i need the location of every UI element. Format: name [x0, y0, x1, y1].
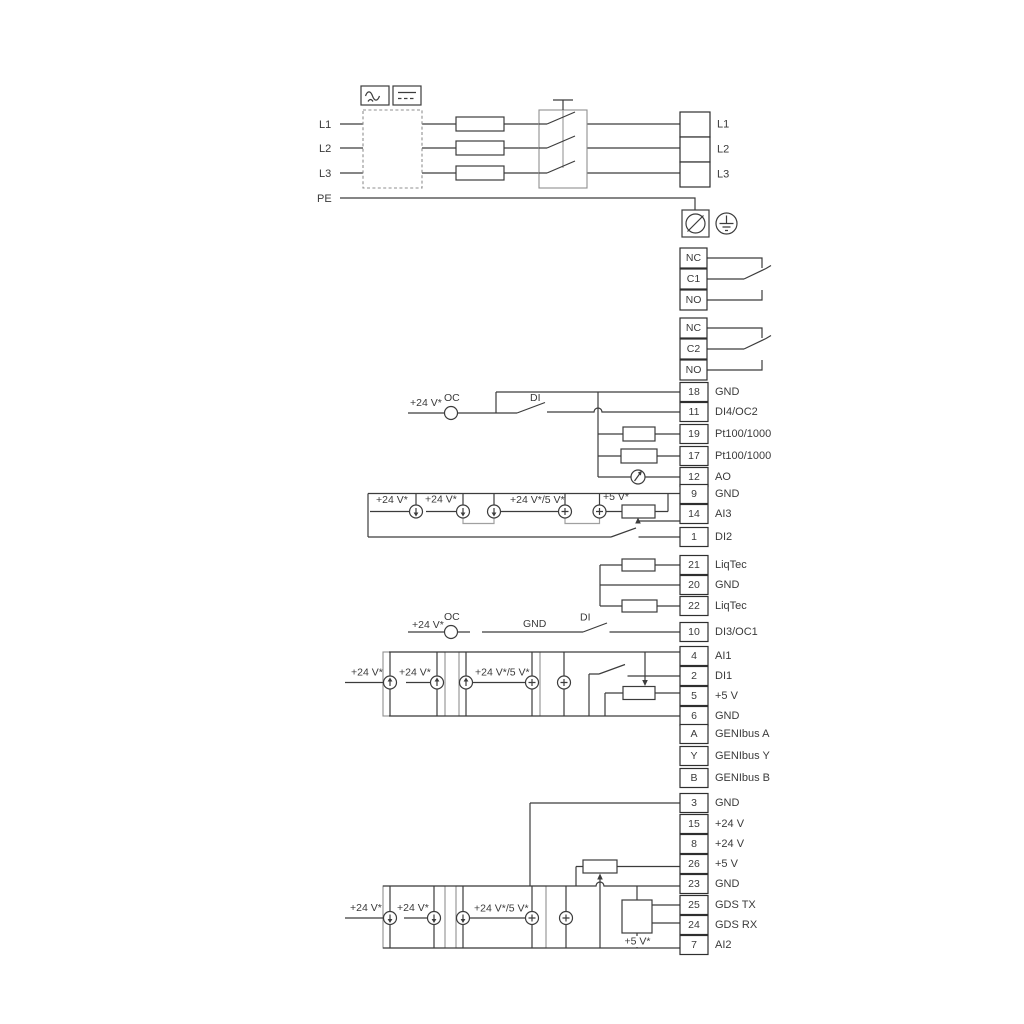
wiper-arrow-down: [642, 680, 648, 686]
fuse-l3: [456, 166, 504, 180]
terminal-label: GND: [715, 710, 740, 722]
terminal-number: C1: [687, 273, 701, 285]
terminal-number: 26: [688, 858, 700, 870]
pt100-sensor-17: [621, 449, 657, 463]
terminal-label: +24 V: [715, 818, 745, 830]
mains-label-l2: L2: [319, 143, 331, 155]
terminal-label: GND: [715, 878, 740, 890]
label-oc: OC: [444, 611, 460, 623]
main-switch: [539, 100, 587, 188]
terminal-label: L3: [717, 169, 729, 181]
terminal-label: GDS RX: [715, 919, 758, 931]
terminal-cell: [680, 112, 710, 137]
label-di: DI: [580, 612, 591, 624]
terminal-label: LiqTec: [715, 559, 747, 571]
terminal-label: L1: [717, 119, 729, 131]
terminal-number: 25: [688, 899, 700, 911]
label-5v: +5 V*: [603, 491, 629, 503]
label-24v: +24 V*: [425, 494, 457, 506]
terminal-number: 4: [691, 650, 697, 662]
terminal-number: NO: [686, 294, 702, 306]
gnd18-rail: [496, 392, 680, 413]
liqtec-terminals: 21LiqTec20GND22LiqTec: [680, 556, 747, 616]
terminal-cell: [680, 162, 710, 187]
relay1-contact: [707, 258, 771, 300]
terminal-number: 3: [691, 797, 697, 809]
terminal-label: GDS TX: [715, 899, 756, 911]
label-24v-5v: +24 V*/5 V*: [475, 667, 530, 679]
terminal-label: AI3: [715, 508, 732, 520]
terminal-label: L2: [717, 144, 729, 156]
label-oc: OC: [444, 392, 460, 404]
label-di: DI: [530, 392, 541, 404]
terminal-number: 2: [691, 670, 697, 682]
pe-termination: [682, 210, 737, 237]
mains-label-pe: PE: [317, 193, 332, 205]
option-group-u1: [463, 518, 494, 524]
label-gnd: GND: [523, 618, 547, 630]
genibus-terminals: AGENIbus AYGENIbus YBGENIbus B: [680, 725, 770, 788]
terminal-label: GENIbus A: [715, 728, 770, 740]
di3-wiring: +24 V* OC GND DI: [408, 611, 680, 639]
wiring-diagram: L1 L2 L3 PE: [0, 0, 1024, 1024]
fuse-l1: [456, 117, 504, 131]
terminal-number: 21: [688, 559, 700, 571]
label-24v: +24 V*: [412, 619, 444, 631]
terminal-label: Pt100/1000: [715, 428, 771, 440]
label-24v: +24 V*: [376, 494, 408, 506]
power-terminal-block: L1L2L3: [680, 112, 729, 187]
di4-switch: [496, 403, 680, 414]
label-24v-5v: +24 V*/5 V*: [510, 494, 565, 506]
terminal-label: DI4/OC2: [715, 406, 758, 418]
source-stubs: [390, 886, 566, 948]
terminal-label: GND: [715, 579, 740, 591]
label-24v: +24 V*: [397, 902, 429, 914]
label-24v-5v: +24 V*/5 V*: [474, 903, 529, 915]
io-top-terminals: 18GND11DI4/OC219Pt100/100017Pt100/100012…: [680, 383, 771, 547]
terminal-number: 10: [688, 626, 700, 638]
relay-2-section: NCC2NO: [680, 318, 771, 380]
relay-1-section: NCC1NO: [680, 248, 771, 310]
terminal-label: +5 V: [715, 690, 739, 702]
label-24v: +24 V*: [350, 902, 382, 914]
terminal-label: DI2: [715, 531, 732, 543]
wiper-arrow-up: [597, 874, 603, 880]
terminal-number: A: [690, 728, 697, 740]
terminal-number: Y: [690, 750, 697, 762]
label-24v: +24 V*: [410, 397, 442, 409]
potentiometer: [622, 505, 655, 518]
relay2-block: NCC2NO: [680, 318, 707, 380]
terminal-number: NO: [686, 364, 702, 376]
terminal-number: 6: [691, 710, 697, 722]
io-bottom-terminals: 3GND15+24 V8+24 V26+5 V23GND25GDS TX24GD…: [680, 794, 758, 955]
open-collector-icon: [445, 626, 458, 639]
terminal-number: 19: [688, 428, 700, 440]
terminal-number: C2: [687, 343, 701, 355]
relay1-block: NCC1NO: [680, 248, 707, 310]
terminal-cell: [680, 137, 710, 162]
label-24v: +24 V*: [399, 667, 431, 679]
pt100-sensor-19: [623, 427, 655, 441]
io-mid-terminals: 10DI3/OC14AI12DI15+5 V6GND: [680, 623, 758, 726]
terminal-label: Pt100/1000: [715, 450, 771, 462]
potentiometer: [623, 687, 655, 700]
io-top-wiring: +24 V* OC DI: [408, 392, 680, 484]
label-24v: +24 V*: [351, 667, 383, 679]
terminal-label: DI3/OC1: [715, 626, 758, 638]
terminal-label: GENIbus B: [715, 772, 770, 784]
label-5v: +5 V*: [625, 936, 651, 948]
terminal-number: 24: [688, 919, 700, 931]
terminal-label: GND: [715, 797, 740, 809]
switch-blades: [539, 112, 575, 173]
terminal-number: 15: [688, 818, 700, 830]
liqtec-sensor-21: [622, 559, 655, 571]
terminal-number: 7: [691, 939, 697, 951]
ai3-sensor-options: +24 V* +24 V* +24 V*/5 V* +5 V*: [368, 491, 680, 537]
terminal-label: LiqTec: [715, 600, 747, 612]
potentiometer: [583, 860, 617, 873]
terminal-number: 20: [688, 579, 700, 591]
gnd23-rail: [383, 882, 680, 886]
mains-input-section: L1 L2 L3 PE: [317, 86, 737, 237]
terminal-number: NC: [686, 252, 702, 264]
terminal-label: GND: [715, 488, 740, 500]
terminal-number: 1: [691, 531, 697, 543]
filter-box: [363, 110, 422, 188]
terminal-number: 12: [688, 471, 700, 483]
ai1-sensor-options: +24 V* +24 V* +24 V*/5 V*: [345, 652, 680, 716]
terminal-number: B: [690, 772, 697, 784]
terminal-label: GENIbus Y: [715, 750, 770, 762]
terminal-number: 22: [688, 600, 700, 612]
terminal-number: 5: [691, 690, 697, 702]
terminal-number: 9: [691, 488, 697, 500]
relay2-contact: [707, 328, 771, 370]
terminal-label: GND: [715, 386, 740, 398]
option-group-u2: [565, 518, 600, 524]
terminal-number: 11: [689, 406, 700, 418]
terminal-label: DI1: [715, 670, 732, 682]
terminal-number: 17: [688, 450, 700, 462]
fuse-l2: [456, 141, 504, 155]
mains-label-l1: L1: [319, 119, 331, 131]
open-collector-icon: [445, 407, 458, 420]
liqtec-wiring: [600, 559, 680, 612]
gds-sensor-box: [622, 900, 652, 933]
terminal-label: +24 V: [715, 838, 745, 850]
io-bottom-wiring: +5 V* +24 V* +24 V* +24 V*/5 V*: [345, 803, 680, 948]
terminal-label: +5 V: [715, 858, 739, 870]
terminal-number: NC: [686, 322, 702, 334]
terminal-number: 8: [691, 838, 697, 850]
terminal-number: 18: [688, 386, 700, 398]
terminal-label: AI1: [715, 650, 732, 662]
terminal-label: AI2: [715, 939, 732, 951]
terminal-number: 14: [688, 508, 700, 520]
terminal-number: 23: [688, 878, 700, 890]
mains-label-l3: L3: [319, 168, 331, 180]
terminal-label: AO: [715, 471, 731, 483]
dc-symbol-box: [393, 86, 421, 105]
liqtec-sensor-22: [622, 600, 657, 612]
switch-handle-icon: [553, 100, 573, 110]
wire-pe: [340, 198, 695, 210]
